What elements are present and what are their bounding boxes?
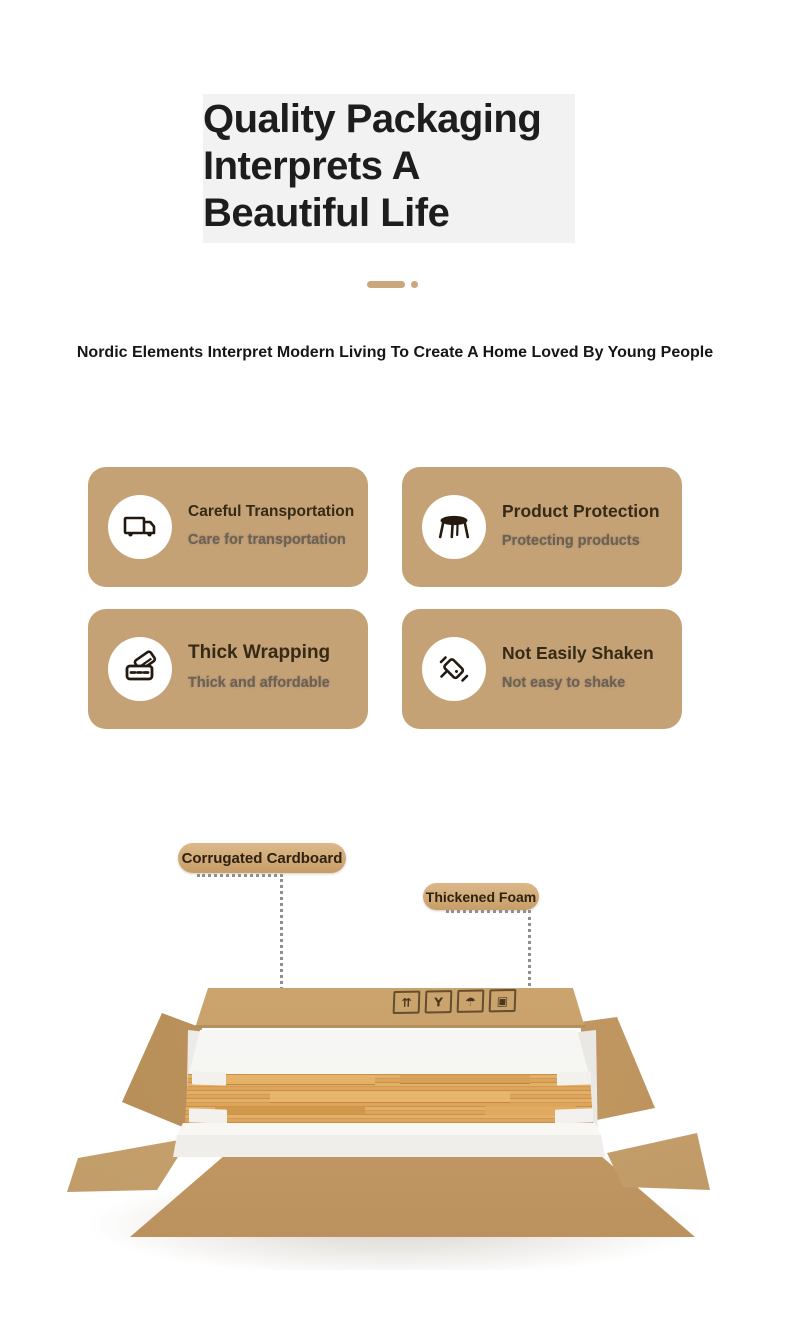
card-title: Thick Wrapping: [188, 642, 360, 664]
wrapping-wallet-icon: [120, 649, 160, 689]
card-title: Product Protection: [502, 501, 674, 522]
icon-circle: [108, 637, 172, 701]
corner-protector: [557, 1071, 591, 1085]
icon-circle: [108, 495, 172, 559]
corner-protector: [555, 1108, 593, 1123]
icon-circle: [422, 495, 486, 559]
shake-phone-icon: [434, 649, 474, 689]
divider-bar: [367, 281, 405, 288]
wood-plank: [400, 1075, 530, 1084]
card-title: Careful Transportation: [188, 503, 360, 521]
package-icon: ▣: [489, 989, 517, 1012]
product-page: Quality Packaging Interprets A Beautiful…: [0, 0, 790, 1341]
fragile-icon: Y: [425, 990, 453, 1013]
page-subtitle: Nordic Elements Interpret Modern Living …: [0, 344, 790, 362]
feature-card-transportation: Careful Transportation Care for transpor…: [88, 467, 368, 587]
card-subtitle: Protecting products: [502, 533, 674, 549]
label-thickened-foam: Thickened Foam: [423, 883, 539, 910]
card-subtitle: Not easy to shake: [502, 675, 674, 691]
card-subtitle: Care for transportation: [188, 532, 360, 548]
wood-plank: [270, 1092, 510, 1103]
page-title: Quality Packaging Interprets A Beautiful…: [203, 96, 623, 237]
keep-dry-icon: ☂: [457, 989, 485, 1012]
feature-card-protection: Product Protection Protecting products: [402, 467, 682, 587]
card-title: Not Easily Shaken: [502, 643, 674, 664]
corner-protector: [189, 1108, 227, 1123]
round-table-icon: [434, 507, 474, 547]
divider-dot: [411, 281, 418, 288]
this-way-up-icon: ⇈: [393, 991, 421, 1014]
card-subtitle: Thick and affordable: [188, 675, 360, 691]
leader-line: [197, 874, 283, 877]
carton-print-symbols: ⇈ Y ☂ ▣: [393, 989, 517, 1014]
feature-card-wrapping: Thick Wrapping Thick and affordable: [88, 609, 368, 729]
leader-line: [446, 910, 531, 913]
truck-icon: [120, 507, 160, 547]
corner-protector: [192, 1071, 226, 1085]
icon-circle: [422, 637, 486, 701]
label-corrugated-cardboard: Corrugated Cardboard: [178, 843, 346, 873]
wood-plank: [215, 1075, 375, 1085]
packaging-box-illustration: ⇈ Y ☂ ▣: [65, 975, 725, 1265]
feature-card-shake: Not Easily Shaken Not easy to shake: [402, 609, 682, 729]
wood-plank: [215, 1106, 365, 1115]
